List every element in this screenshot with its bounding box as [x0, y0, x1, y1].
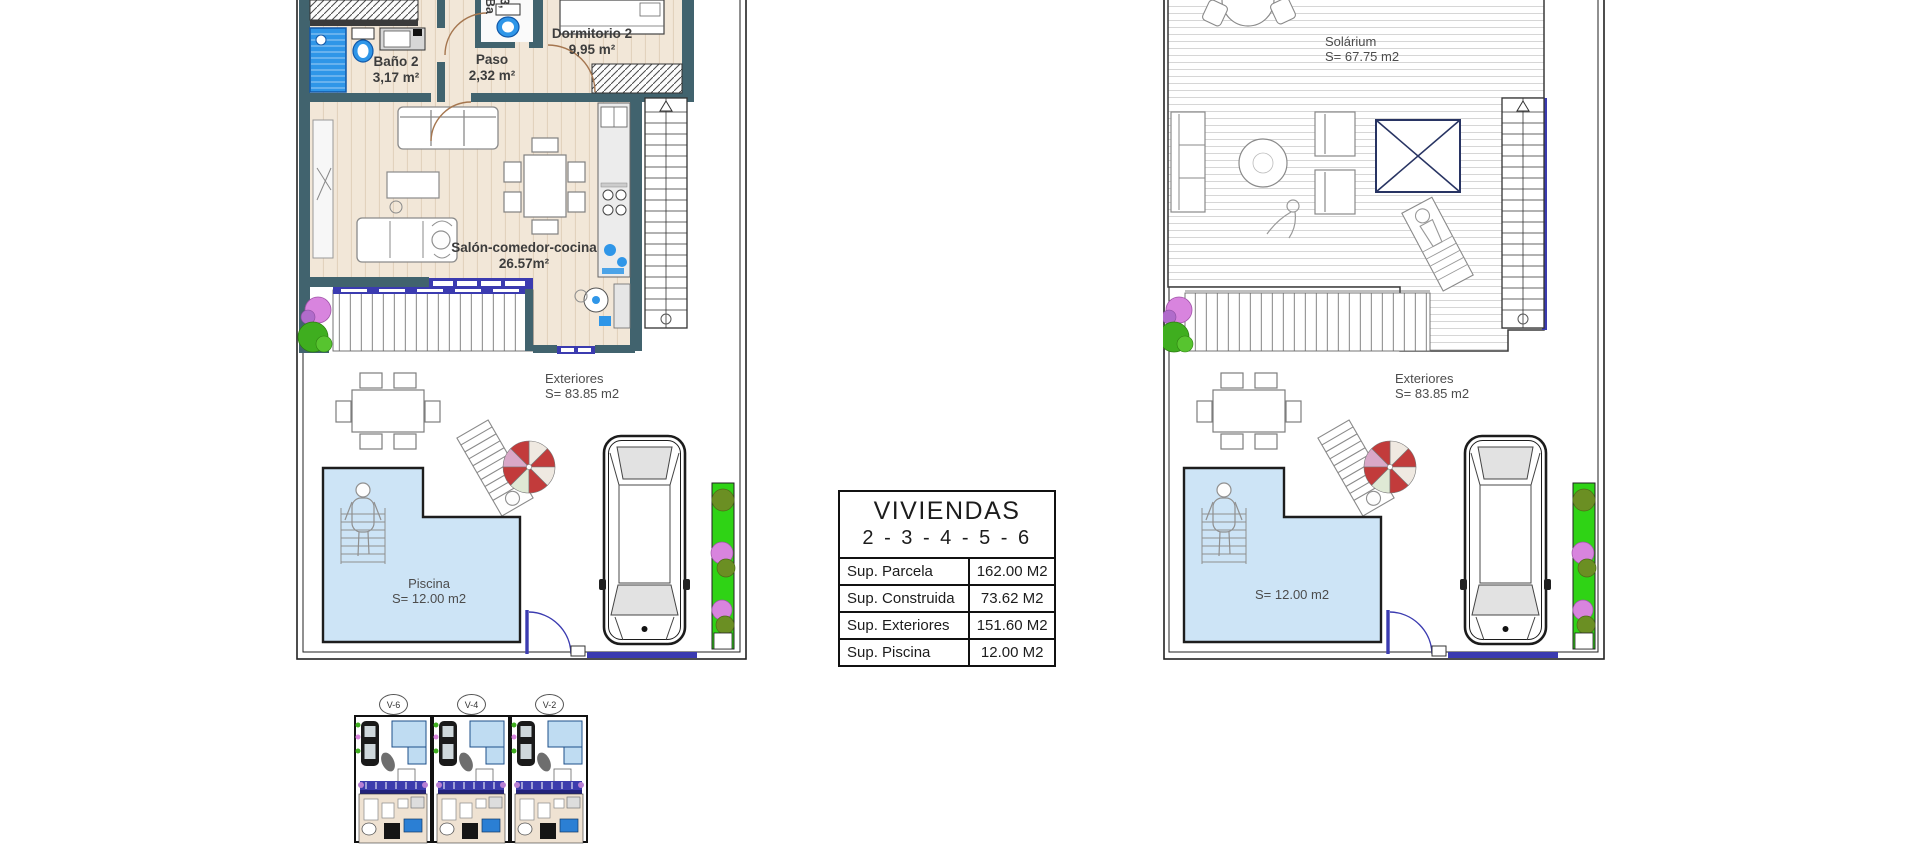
- room-name: Solárium: [1325, 34, 1399, 49]
- room-area: S= 12.00 m2: [392, 591, 466, 606]
- floorplan-sheet: { "sheet": { "background": "#ffffff", "p…: [0, 0, 1920, 837]
- sink-counter: [380, 28, 425, 50]
- room-name: Exteriores: [1395, 371, 1469, 386]
- label-solarium: Solárium S= 67.75 m2: [1325, 34, 1399, 65]
- label-exteriores: Exteriores S= 83.85 m2: [545, 371, 619, 402]
- room-name: Ba: [482, 0, 497, 14]
- room-label-salon: Salón-comedor-cocina 26.57m²: [451, 240, 597, 272]
- room-area: S= 67.75 m2: [1325, 49, 1399, 64]
- mini-site-plan: [432, 715, 510, 845]
- room-name: Baño 2: [373, 54, 420, 70]
- room-area: 2,32 m²: [469, 68, 516, 84]
- ground-floor-drawing: [296, 0, 748, 668]
- bed-top: [310, 0, 418, 20]
- room-label-paso: Paso 2,32 m²: [469, 52, 516, 84]
- skylight-x: [1376, 120, 1460, 192]
- row-value: 151.60 M2: [970, 613, 1054, 638]
- room-area: S= 83.85 m2: [1395, 386, 1469, 401]
- row-label: Sup. Construida: [840, 586, 970, 611]
- thumbnail-tag: V-6: [379, 694, 408, 715]
- room-name: Salón-comedor-cocina: [451, 240, 597, 256]
- mini-villa-drawing: [355, 716, 431, 843]
- deck-coffee-table: [1239, 139, 1287, 187]
- label-exteriores: Exteriores S= 83.85 m2: [1395, 371, 1469, 402]
- room-label-dormitorio2: Dormitorio 2 9,95 m²: [552, 26, 632, 58]
- exterior-set: [323, 373, 735, 658]
- room-name: Paso: [469, 52, 516, 68]
- wardrobe: [592, 64, 682, 93]
- room-area: 3,: [497, 0, 512, 14]
- exterior-set: [1184, 373, 1596, 658]
- deck-sofa: [1171, 112, 1205, 212]
- toilet-icon: [352, 28, 374, 62]
- row-label: Sup. Exteriores: [840, 613, 970, 638]
- ground-floor-plan: Baño 2 3,17 m² Paso 2,32 m² Ba 3, Dormit…: [296, 0, 748, 668]
- room-name: Dormitorio 2: [552, 26, 632, 42]
- label-piscina: Piscina S= 12.00 m2: [392, 576, 466, 607]
- pergola-slats: [1185, 291, 1430, 351]
- mini-villa-drawing: [511, 716, 587, 843]
- site-thumbnail-v2: V-2: [510, 689, 588, 839]
- mini-villa-drawing: [433, 716, 509, 843]
- sofa-top: [398, 107, 498, 149]
- staircase: [645, 98, 687, 328]
- staircase: [1502, 98, 1544, 328]
- tv-bench: [313, 120, 333, 258]
- row-value: 12.00 M2: [970, 640, 1054, 665]
- table-row: Sup. Parcela 162.00 M2: [840, 559, 1054, 586]
- mini-site-plan: [510, 715, 588, 845]
- row-label: Sup. Parcela: [840, 559, 970, 584]
- room-area: 9,95 m²: [552, 42, 632, 58]
- shower: [310, 28, 346, 92]
- coffee-table: [387, 172, 439, 198]
- table-title: VIVIENDAS: [840, 497, 1054, 526]
- round-table-top: [1201, 0, 1296, 27]
- mini-site-plan: [354, 715, 432, 845]
- viviendas-table: VIVIENDAS 2 - 3 - 4 - 5 - 6 Sup. Parcela…: [838, 490, 1056, 667]
- table-subtitle: 2 - 3 - 4 - 5 - 6: [840, 527, 1054, 550]
- table-row: Sup. Exteriores 151.60 M2: [840, 613, 1054, 640]
- solarium-plan: Solárium S= 67.75 m2 Exteriores S= 83.85…: [1163, 0, 1607, 668]
- room-name: Piscina: [392, 576, 466, 591]
- terrace-pergola: [333, 290, 533, 351]
- room-name: Exteriores: [545, 371, 619, 386]
- row-label: Sup. Piscina: [840, 640, 970, 665]
- table-header: VIVIENDAS 2 - 3 - 4 - 5 - 6: [840, 492, 1054, 559]
- site-thumbnail-v6: V-6: [354, 689, 432, 839]
- thumbnail-tag: V-2: [535, 694, 564, 715]
- solarium-drawing: [1163, 0, 1607, 668]
- row-value: 162.00 M2: [970, 559, 1054, 584]
- room-label-bano3: Ba 3,: [482, 0, 512, 14]
- room-area: 3,17 m²: [373, 70, 420, 86]
- label-pool-area: S= 12.00 m2: [1255, 587, 1329, 602]
- table-row: Sup. Piscina 12.00 M2: [840, 640, 1054, 665]
- site-thumbnail-v4: V-4: [432, 689, 510, 839]
- thumbnail-tag: V-4: [457, 694, 486, 715]
- room-area: S= 83.85 m2: [545, 386, 619, 401]
- row-value: 73.62 M2: [970, 586, 1054, 611]
- bed-frame: [310, 20, 418, 26]
- kitchen-counter: [598, 103, 630, 277]
- table-row: Sup. Construida 73.62 M2: [840, 586, 1054, 613]
- room-label-bano2: Baño 2 3,17 m²: [373, 54, 420, 86]
- room-area: S= 12.00 m2: [1255, 587, 1329, 602]
- sofa-bottom: [357, 218, 457, 262]
- room-area: 26.57m²: [451, 256, 597, 272]
